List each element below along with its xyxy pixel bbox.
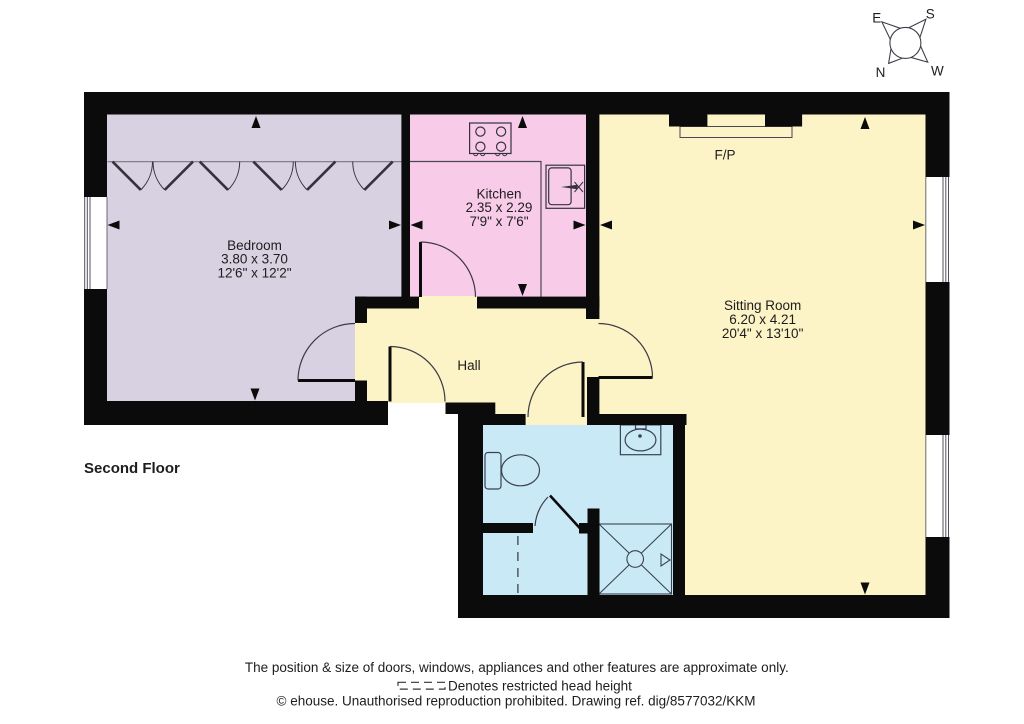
svg-text:Second Floor: Second Floor bbox=[84, 460, 180, 477]
svg-text:The position & size of doors,: The position & size of doors, windows, a… bbox=[245, 660, 789, 675]
svg-text:W: W bbox=[931, 64, 944, 79]
svg-text:S: S bbox=[926, 7, 935, 22]
svg-text:Denotes restricted head height: Denotes restricted head height bbox=[448, 678, 632, 693]
svg-text:Bedroom: Bedroom bbox=[227, 238, 282, 253]
svg-text:6.20 x 4.21: 6.20 x 4.21 bbox=[729, 312, 796, 327]
svg-text:© ehouse. Unauthorised reprodu: © ehouse. Unauthorised reproduction proh… bbox=[277, 693, 756, 708]
svg-text:N: N bbox=[876, 65, 886, 80]
svg-text:12'6" x 12'2": 12'6" x 12'2" bbox=[217, 265, 291, 280]
svg-text:Kitchen: Kitchen bbox=[476, 186, 521, 201]
svg-text:E: E bbox=[872, 11, 881, 26]
svg-text:2.35 x 2.29: 2.35 x 2.29 bbox=[466, 200, 533, 215]
svg-text:F/P: F/P bbox=[714, 147, 735, 162]
svg-text:Sitting Room: Sitting Room bbox=[724, 298, 801, 313]
svg-text:Hall: Hall bbox=[457, 358, 480, 373]
svg-text:7'9" x 7'6": 7'9" x 7'6" bbox=[469, 214, 528, 229]
svg-text:3.80 x 3.70: 3.80 x 3.70 bbox=[221, 252, 288, 267]
svg-text:20'4" x 13'10": 20'4" x 13'10" bbox=[722, 326, 804, 341]
